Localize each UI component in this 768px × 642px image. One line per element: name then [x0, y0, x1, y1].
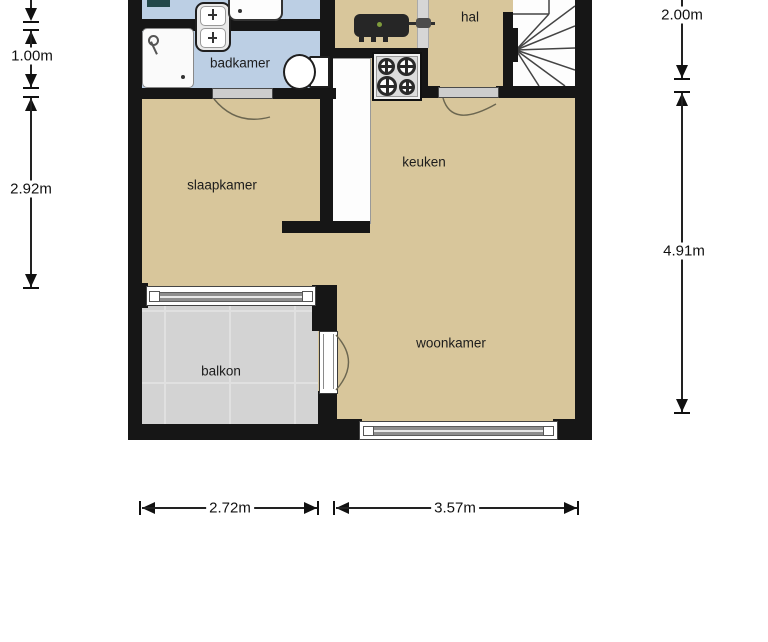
burner-icon	[399, 79, 415, 95]
dimension-label: 2.00m	[658, 7, 706, 24]
window-stop	[149, 291, 160, 302]
wall	[128, 424, 338, 440]
room-label-hal: hal	[461, 10, 479, 25]
livingroom-window	[359, 421, 558, 440]
faucet-icon	[208, 9, 217, 20]
wall	[553, 419, 592, 440]
wall	[320, 419, 362, 440]
dimension-label: 2.92m	[7, 181, 55, 198]
radiator	[147, 0, 170, 7]
dimension-label: 3.57m	[431, 500, 479, 517]
window-stop	[363, 426, 374, 436]
hall-door	[438, 87, 499, 98]
faucet-icon	[208, 32, 217, 43]
stove	[372, 52, 422, 101]
burner-icon	[377, 76, 397, 96]
stair-newel-post	[510, 28, 518, 62]
dimension-label: 1.00m	[8, 48, 56, 65]
staircase	[513, 0, 575, 86]
shower	[142, 28, 194, 88]
bedroom-window	[146, 286, 316, 306]
bedroom-door	[212, 88, 273, 99]
room-label-keuken: keuken	[402, 155, 446, 170]
boiler-valve-icon	[416, 18, 431, 28]
kitchen-counter	[332, 58, 371, 224]
floor-plan: badkamer hal slaapkamer keuken woonkamer…	[0, 0, 768, 642]
bathtub	[228, 0, 283, 21]
wall	[128, 88, 212, 99]
window-glazing	[155, 292, 305, 302]
burner-icon	[397, 57, 416, 76]
staircase-steps-icon	[513, 0, 575, 86]
balcony-door	[319, 331, 338, 394]
double-washbasin	[195, 2, 231, 52]
window-glazing	[369, 426, 547, 436]
window-stop	[543, 426, 554, 436]
dimension-label: 4.91m	[660, 243, 708, 260]
wall	[128, 283, 148, 308]
window-stop	[302, 291, 313, 302]
wall	[128, 0, 142, 440]
boiler	[354, 14, 409, 37]
room-label-slaapkamer: slaapkamer	[187, 178, 257, 193]
room-label-woonkamer: woonkamer	[416, 336, 486, 351]
dimension-label: 2.72m	[206, 500, 254, 517]
drain-icon	[181, 75, 185, 79]
wall	[282, 221, 370, 233]
toilet-bowl	[283, 54, 316, 90]
room-label-balkon: balkon	[201, 364, 241, 379]
wall	[575, 0, 592, 440]
tub-faucet-icon	[238, 9, 242, 13]
room-label-badkamer: badkamer	[210, 56, 270, 71]
boiler-light-icon	[377, 22, 382, 27]
burner-icon	[378, 58, 395, 75]
